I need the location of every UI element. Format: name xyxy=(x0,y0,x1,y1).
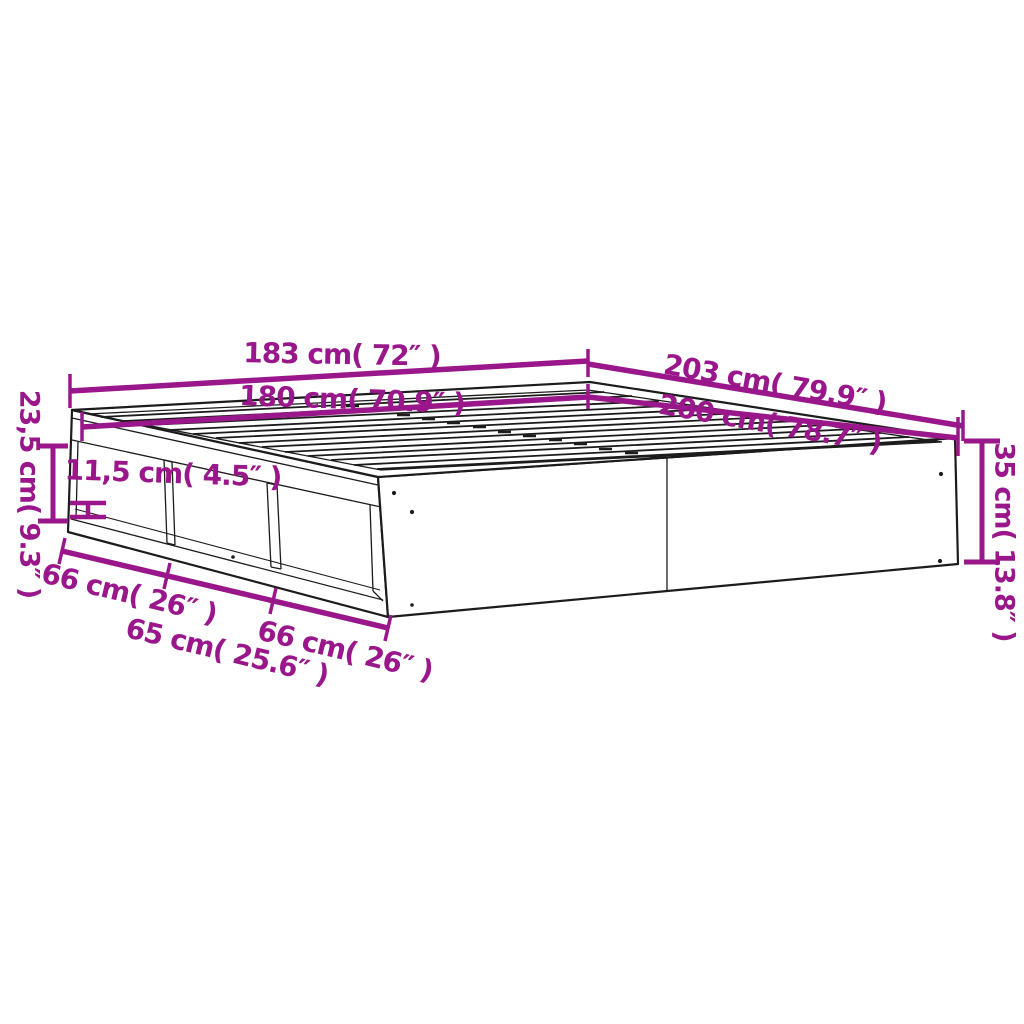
bed-frame-dimension-diagram: 183 cm( 72″ ) 180 cm( 70.9″ ) 203 cm( 79… xyxy=(0,0,1024,1024)
dim-label-height-left: 23,5 cm( 9.3″ ) xyxy=(16,390,43,599)
dim-label-height-right: 35 cm( 13.8″ ) xyxy=(991,442,1018,641)
screw-dot xyxy=(939,472,943,476)
dim-label-width-outer: 183 cm( 72″ ) xyxy=(243,339,441,370)
dim-label-width-inner: 180 cm( 70.9″ ) xyxy=(239,382,465,418)
dim-label-shelf-opening: 11,5 cm( 4.5″ ) xyxy=(64,456,282,492)
screw-dot xyxy=(231,555,235,559)
screw-dot xyxy=(392,491,396,495)
screw-dot xyxy=(410,510,414,514)
diagram-canvas xyxy=(0,0,1024,1024)
screw-dot xyxy=(938,559,942,563)
screw-dot xyxy=(410,603,414,607)
